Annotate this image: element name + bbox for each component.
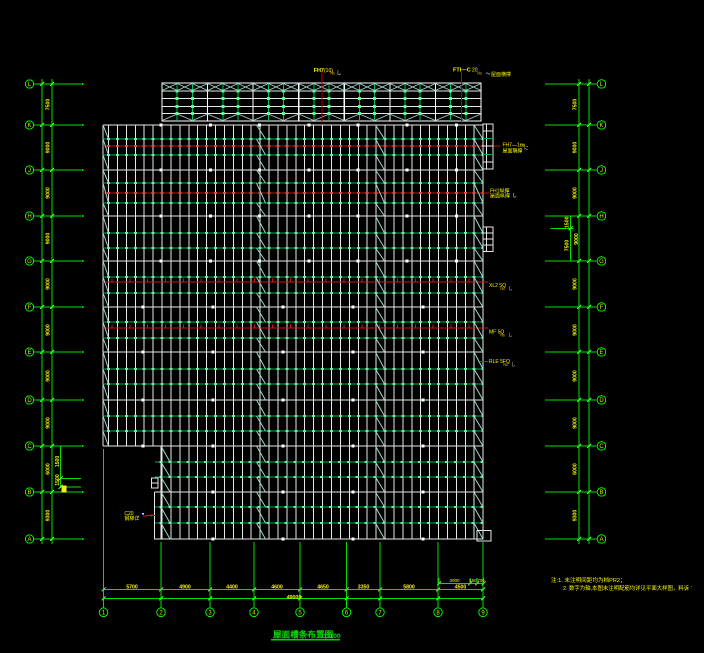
- svg-text:6000: 6000: [573, 463, 579, 475]
- svg-text:～: ～: [486, 72, 491, 78]
- svg-text:№: №: [500, 286, 505, 291]
- svg-text:9000: 9000: [46, 142, 52, 154]
- svg-text:钢梯详: 钢梯详: [124, 515, 139, 522]
- svg-text:9000: 9000: [46, 233, 52, 245]
- svg-text:FH7: FH7: [314, 68, 324, 74]
- svg-text:3000: 3000: [449, 578, 460, 583]
- svg-text:3350: 3350: [358, 584, 370, 590]
- svg-text:B: B: [27, 490, 31, 496]
- svg-text:C: C: [599, 444, 604, 450]
- svg-text:700: 700: [478, 578, 486, 583]
- svg-text:7500: 7500: [573, 99, 579, 111]
- svg-text:G: G: [599, 259, 604, 265]
- svg-text:注:1. 未注明间距均为档PR2；: 注:1. 未注明间距均为档PR2；: [551, 576, 626, 584]
- svg-text:9000: 9000: [573, 417, 579, 429]
- svg-text:9000: 9000: [46, 370, 52, 382]
- svg-text:9000: 9000: [573, 370, 579, 382]
- svg-text:4650: 4650: [317, 584, 329, 590]
- svg-text:1500: 1500: [55, 456, 61, 468]
- svg-text:9000: 9000: [46, 187, 52, 199]
- svg-text:G: G: [27, 259, 32, 265]
- svg-text:し: し: [508, 333, 513, 338]
- svg-text:F: F: [600, 305, 604, 311]
- svg-text:D: D: [599, 398, 604, 404]
- svg-text:4600: 4600: [271, 584, 283, 590]
- svg-text:FTI—C: FTI—C: [453, 68, 471, 74]
- svg-text:K: K: [27, 123, 31, 129]
- svg-text:B: B: [599, 490, 603, 496]
- svg-text:4400: 4400: [226, 584, 238, 590]
- svg-text:D: D: [27, 398, 32, 404]
- svg-text:9000: 9000: [573, 142, 579, 154]
- svg-text:J: J: [28, 168, 31, 174]
- svg-text:A: A: [27, 537, 31, 543]
- svg-text:5700: 5700: [126, 584, 138, 590]
- svg-text:E: E: [599, 350, 603, 356]
- svg-text:屋面横撑: 屋面横撑: [491, 71, 511, 78]
- svg-text:し: し: [512, 193, 517, 199]
- svg-text:9300: 9300: [573, 510, 579, 522]
- svg-text:49000: 49000: [287, 595, 302, 601]
- svg-text:9000: 9000: [46, 278, 52, 290]
- svg-text:2. 数字为轴,本图未注明配筋均详见平面大样图，料诉 ’: 2. 数字为轴,本图未注明配筋均详见平面大样图，料诉 ’: [563, 584, 692, 592]
- svg-text:4500: 4500: [455, 584, 467, 590]
- svg-text:9000: 9000: [46, 417, 52, 429]
- svg-text:1:100: 1:100: [323, 633, 341, 640]
- svg-text:150: 150: [470, 578, 478, 583]
- svg-text:K: K: [599, 123, 603, 129]
- svg-text:№: №: [330, 71, 335, 76]
- svg-text:し: し: [511, 362, 516, 367]
- svg-text:J: J: [600, 168, 603, 174]
- svg-text:屋面隅撑: 屋面隅撑: [503, 147, 523, 154]
- svg-text:H: H: [599, 214, 603, 220]
- svg-text:9300: 9300: [46, 510, 52, 522]
- svg-text:9000: 9000: [573, 278, 579, 290]
- svg-text:№: №: [503, 362, 508, 367]
- svg-text:し: し: [508, 286, 513, 291]
- svg-text:し: し: [337, 71, 342, 77]
- svg-text:9000: 9000: [573, 324, 579, 336]
- svg-text:9000: 9000: [574, 233, 580, 245]
- svg-text:№: №: [477, 71, 482, 76]
- svg-text:5800: 5800: [403, 584, 415, 590]
- svg-text:7500: 7500: [46, 99, 52, 111]
- svg-text:7500: 7500: [565, 240, 571, 252]
- svg-text:H: H: [27, 214, 31, 220]
- svg-text:E: E: [27, 350, 31, 356]
- svg-text:A: A: [599, 537, 603, 543]
- svg-text:C: C: [27, 444, 32, 450]
- svg-text:4900: 4900: [179, 584, 191, 590]
- svg-text:9000: 9000: [573, 187, 579, 199]
- svg-text:1500: 1500: [565, 216, 571, 228]
- svg-text:9000: 9000: [46, 324, 52, 336]
- svg-text:6000: 6000: [46, 463, 52, 475]
- svg-text:№: №: [500, 333, 505, 338]
- svg-text:F: F: [28, 305, 32, 311]
- svg-text:屋面纵撑: 屋面纵撑: [490, 193, 510, 200]
- svg-text:1500: 1500: [55, 474, 61, 486]
